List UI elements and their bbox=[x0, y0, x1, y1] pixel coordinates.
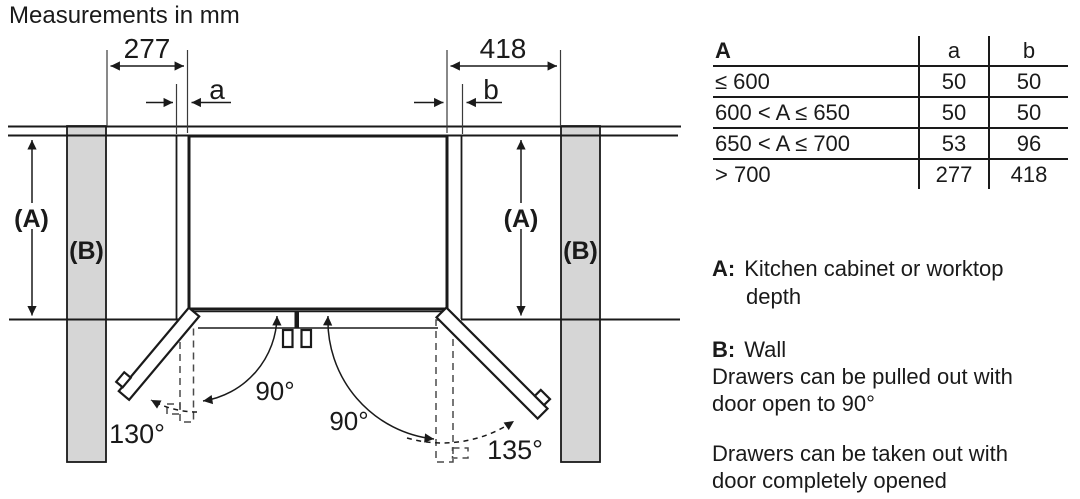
wall-label-right: (B) bbox=[563, 237, 598, 265]
row0-range: ≤ 600 bbox=[713, 66, 919, 97]
row0-b: 50 bbox=[989, 66, 1068, 97]
table-row: 600 < A ≤ 650 50 50 bbox=[713, 97, 1068, 128]
depth-label-left: (A) bbox=[14, 205, 49, 233]
door-stop-right bbox=[302, 330, 312, 347]
note-take-line1: Drawers can be taken out with bbox=[712, 440, 1080, 467]
row0-a: 50 bbox=[919, 66, 989, 97]
gap-a-label: a bbox=[209, 74, 225, 105]
row2-a: 53 bbox=[919, 128, 989, 159]
depth-label-right: (A) bbox=[504, 205, 539, 233]
note-pull-line1: Drawers can be pulled out with bbox=[712, 363, 1080, 390]
note-take-line2: door completely opened bbox=[712, 467, 1080, 494]
table-row: ≤ 600 50 50 bbox=[713, 66, 1068, 97]
angle-left-130: 130° bbox=[109, 419, 165, 449]
note-wall-and-drawers: B:Wall Drawers can be pulled out with do… bbox=[712, 336, 1080, 417]
note-a-label: A: bbox=[712, 256, 735, 281]
door-stop-left bbox=[283, 330, 293, 347]
row1-a: 50 bbox=[919, 97, 989, 128]
note-a-text-2: depth bbox=[746, 283, 1080, 311]
angle-left-90: 90° bbox=[255, 376, 294, 406]
door-divider bbox=[295, 311, 300, 328]
installation-diagram-page: Measurements in mm bbox=[0, 0, 1080, 499]
angle-right-90: 90° bbox=[329, 406, 368, 436]
table-header-row: A a b bbox=[713, 36, 1068, 66]
col-header-b: b bbox=[989, 36, 1068, 66]
clearance-table: A a b ≤ 600 50 50 600 < A ≤ 650 50 50 65… bbox=[713, 36, 1068, 189]
wall-label-left: (B) bbox=[69, 237, 104, 265]
wall-left bbox=[67, 126, 106, 462]
swing-arc-left-130 bbox=[151, 400, 197, 412]
note-b-label: B: bbox=[712, 337, 735, 362]
row3-a: 277 bbox=[919, 159, 989, 189]
note-drawers-removal: Drawers can be taken out with door compl… bbox=[712, 440, 1080, 494]
door-left-open-130 bbox=[113, 303, 200, 400]
row1-b: 50 bbox=[989, 97, 1068, 128]
table-row: > 700 277 418 bbox=[713, 159, 1068, 189]
row2-range: 650 < A ≤ 700 bbox=[713, 128, 919, 159]
wall-right bbox=[561, 126, 600, 462]
row2-b: 96 bbox=[989, 128, 1068, 159]
note-cabinet-depth: A:Kitchen cabinet or worktop depth bbox=[712, 255, 1080, 311]
angle-right-135: 135° bbox=[487, 435, 543, 465]
note-a-text: Kitchen cabinet or worktop bbox=[744, 256, 1003, 281]
note-b-text: Wall bbox=[744, 337, 786, 362]
note-pull-line2: door open to 90° bbox=[712, 390, 1080, 417]
col-header-a: a bbox=[919, 36, 989, 66]
dim-277: 277 bbox=[124, 33, 171, 64]
row3-b: 418 bbox=[989, 159, 1068, 189]
row3-range: > 700 bbox=[713, 159, 919, 189]
col-header-A: A bbox=[713, 36, 919, 66]
dim-418: 418 bbox=[480, 33, 527, 64]
row1-range: 600 < A ≤ 650 bbox=[713, 97, 919, 128]
table-row: 650 < A ≤ 700 53 96 bbox=[713, 128, 1068, 159]
appliance-body bbox=[189, 136, 447, 347]
installation-drawing: 277 418 a b (A) (A) (B) (B) 90° 90° 130°… bbox=[0, 0, 700, 499]
gap-b-label: b bbox=[483, 74, 499, 105]
